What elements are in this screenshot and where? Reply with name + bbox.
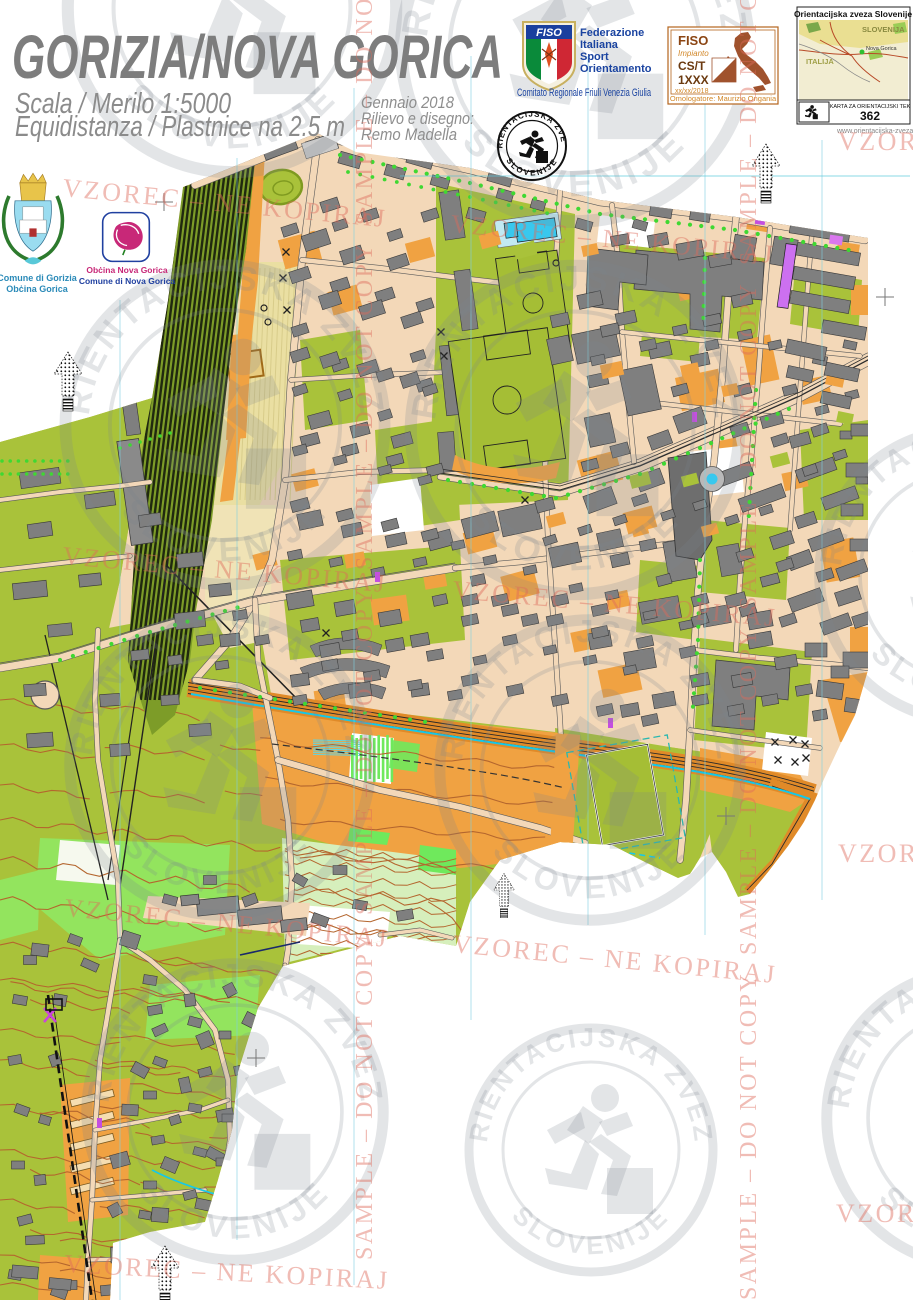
- svg-text:SAMPLE – DO NOT COPY: SAMPLE – DO NOT COPY: [736, 282, 762, 610]
- svg-text:Obċina Nova Gorica: Obċina Nova Gorica: [86, 265, 168, 275]
- svg-text:ITALIJA: ITALIJA: [806, 57, 834, 66]
- svg-text:Italiana: Italiana: [580, 39, 619, 51]
- svg-text:FISO: FISO: [678, 33, 708, 48]
- svg-text:SAMPLE – DO NOT COPY: SAMPLE – DO NOT COPY: [736, 627, 762, 955]
- svg-text:Sport: Sport: [580, 51, 609, 63]
- svg-text:VZOREC – NE KOPIRAJ: VZOREC – NE KOPIRAJ: [838, 127, 913, 156]
- svg-text:SAMPLE – DO NOT COPY: SAMPLE – DO NOT COPY: [352, 932, 378, 1260]
- svg-text:SAMPLE – DO NOT COPY: SAMPLE – DO NOT COPY: [352, 242, 378, 570]
- svg-text:FISO: FISO: [536, 27, 562, 39]
- svg-text:CS/T: CS/T: [678, 59, 706, 73]
- svg-text:Comitato Regionale Friuli Vene: Comitato Regionale Friuli Venezia Giulia: [517, 87, 652, 99]
- svg-text:Comune di Gorizia: Comune di Gorizia: [0, 273, 78, 283]
- svg-text:SLOVENIJA: SLOVENIJA: [862, 25, 905, 34]
- svg-text:Orientamento: Orientamento: [580, 63, 652, 75]
- svg-text:SAMPLE – DO NOT COPY: SAMPLE – DO NOT COPY: [352, 587, 378, 915]
- svg-text:SAMPLE – DO NOT COPY: SAMPLE – DO NOT COPY: [736, 972, 762, 1300]
- svg-text:VZOREC – NE KOPIRAJ: VZOREC – NE KOPIRAJ: [836, 1199, 913, 1228]
- svg-text:Obċina Gorica: Obċina Gorica: [6, 284, 69, 294]
- svg-text:362: 362: [860, 109, 880, 123]
- svg-text:VZOREC – NE KOPIRAJ: VZOREC – NE KOPIRAJ: [838, 839, 913, 868]
- svg-text:1XXX: 1XXX: [678, 73, 709, 87]
- svg-text:Orientacijska zveza Slovenije: Orientacijska zveza Slovenije: [794, 9, 912, 19]
- svg-text:Federazione: Federazione: [580, 27, 644, 39]
- svg-text:Nova Gorica: Nova Gorica: [866, 46, 898, 52]
- svg-text:Impianto: Impianto: [678, 49, 709, 58]
- svg-text:SAMPLE – DO NOT COPY: SAMPLE – DO NOT COPY: [736, 0, 762, 265]
- svg-text:GORIZIA/NOVA GORICA: GORIZIA/NOVA GORICA: [12, 23, 503, 91]
- svg-text:SAMPLE – DO NOT COPY: SAMPLE – DO NOT COPY: [352, 0, 378, 225]
- svg-text:Equidistanza / Plastnice na 2.: Equidistanza / Plastnice na 2.5 m: [15, 111, 345, 143]
- svg-text:Comune di Nova Gorica: Comune di Nova Gorica: [79, 276, 176, 286]
